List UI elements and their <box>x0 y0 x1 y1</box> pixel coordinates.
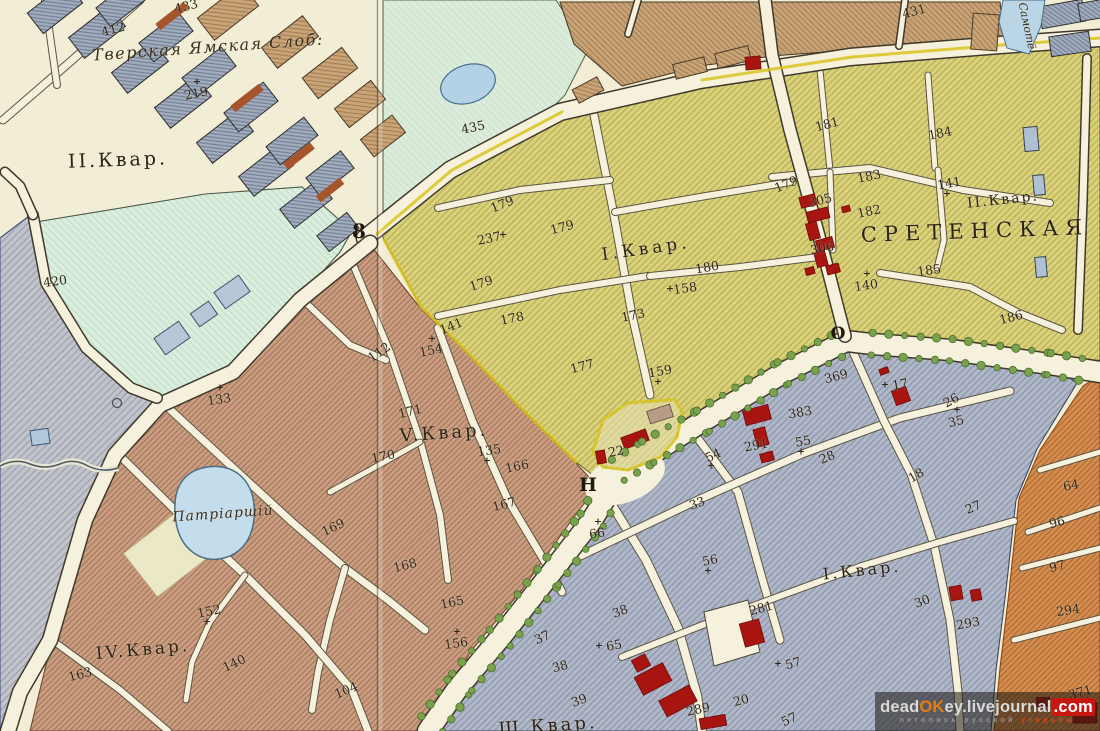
tree-icon <box>621 477 627 483</box>
watermark: deadOKey.livejournal.com летопись русско… <box>875 692 1100 731</box>
tree-icon <box>811 366 819 374</box>
tree-icon <box>449 670 456 677</box>
tree-icon <box>608 456 615 463</box>
tree-icon <box>883 353 890 360</box>
city-block-tan <box>971 13 999 51</box>
tree-icon <box>514 591 521 598</box>
tree-icon <box>814 338 821 345</box>
tree-icon <box>436 689 442 695</box>
tree-icon <box>486 626 493 633</box>
tree-icon <box>827 331 835 339</box>
tree-icon <box>758 369 764 375</box>
watermark-text-segment: .com <box>1052 698 1095 716</box>
tree-icon <box>899 353 907 361</box>
watermark-tagline-segment: усадьбы <box>1021 717 1075 724</box>
tree-icon <box>949 335 956 342</box>
watermark-text-segment: .livejournal <box>962 698 1052 716</box>
tree-icon <box>690 437 696 443</box>
tree-icon <box>693 407 700 414</box>
red-building <box>745 56 761 70</box>
tree-icon <box>946 358 952 364</box>
tree-icon <box>732 384 739 391</box>
tree-icon <box>1029 347 1035 353</box>
tree-icon <box>706 428 712 434</box>
tree-icon <box>977 361 985 369</box>
tree-icon <box>1024 368 1032 376</box>
tree-icon <box>534 565 541 572</box>
tree-icon <box>774 359 781 366</box>
red-building <box>595 450 606 464</box>
tree-icon <box>718 420 725 427</box>
tree-icon <box>600 523 606 529</box>
tree-icon <box>902 332 908 338</box>
tree-icon <box>555 582 561 588</box>
tree-icon <box>1059 374 1066 381</box>
building-bluegrey <box>1033 175 1046 196</box>
tree-icon <box>562 530 569 537</box>
tree-icon <box>591 534 598 541</box>
building-bluegrey <box>1035 257 1048 278</box>
tree-icon <box>607 509 614 516</box>
tree-icon <box>885 330 893 338</box>
watermark-tagline-segment: летопись русской <box>899 717 1021 724</box>
red-building <box>970 589 982 602</box>
tree-icon <box>916 355 922 361</box>
tree-icon <box>570 517 578 525</box>
watermark-tagline: летопись русской усадьбы <box>899 717 1075 724</box>
historical-map: Тверская Ямская Слоб:II.Квар.I.Квар.II.К… <box>0 0 1100 731</box>
tree-icon <box>444 676 451 683</box>
tree-icon <box>505 603 511 609</box>
tree-icon <box>426 700 434 708</box>
tree-icon <box>544 595 551 602</box>
city-block-tan <box>197 0 258 40</box>
city-block-grey <box>1078 0 1100 21</box>
city-block-grey <box>27 0 82 34</box>
tree-icon <box>456 703 464 711</box>
tree-icon <box>495 614 503 622</box>
tree-icon <box>1044 372 1050 378</box>
tree-icon <box>543 553 551 561</box>
watermark-brand: deadOKey.livejournal.com <box>880 699 1095 716</box>
tree-icon <box>757 397 764 404</box>
fold-highlight <box>379 0 383 731</box>
tree-icon <box>584 496 592 504</box>
tree-icon <box>478 636 485 643</box>
tree-icon <box>418 713 425 720</box>
tree-icon <box>487 664 495 672</box>
tree-icon <box>665 424 671 430</box>
tree-icon <box>769 389 777 397</box>
tree-icon <box>868 352 874 358</box>
tree-icon <box>1047 350 1054 357</box>
city-block-tan <box>262 16 319 69</box>
tree-icon <box>798 373 805 380</box>
tree-icon <box>498 653 504 659</box>
tree-icon <box>525 618 533 626</box>
tree-icon <box>663 451 670 458</box>
building-bluegrey <box>30 428 50 445</box>
tree-icon <box>651 459 657 465</box>
tree-icon <box>964 337 972 345</box>
tree-icon <box>583 546 589 552</box>
tree-icon <box>787 351 795 359</box>
tree-icon <box>676 444 684 452</box>
tree-icon <box>996 342 1003 349</box>
tree-icon <box>564 569 571 576</box>
tree-icon <box>448 716 455 723</box>
city-block-tan <box>302 47 357 98</box>
tree-icon <box>801 346 807 352</box>
patriarch-pond <box>175 466 254 559</box>
tree-icon <box>785 381 791 387</box>
tree-icon <box>869 329 876 336</box>
tree-icon <box>621 448 629 456</box>
tree-icon <box>994 365 1000 371</box>
tree-icon <box>931 356 938 363</box>
tree-icon <box>523 579 531 587</box>
tree-icon <box>638 438 645 445</box>
tree-icon <box>962 360 969 367</box>
tree-icon <box>507 643 513 649</box>
watermark-text-segment: ey <box>945 698 963 716</box>
tree-icon <box>458 658 466 666</box>
tree-icon <box>516 631 523 638</box>
tree-icon <box>745 405 751 411</box>
tree-icon <box>478 675 485 682</box>
tree-icon <box>1009 366 1016 373</box>
tree-icon <box>825 360 831 366</box>
building-bluegrey <box>1023 126 1039 151</box>
tree-icon <box>706 399 714 407</box>
tree-icon <box>1012 344 1020 352</box>
watermark-text-segment: dead <box>880 698 919 716</box>
tree-icon <box>731 412 739 420</box>
tree-icon <box>981 340 987 346</box>
tree-icon <box>469 648 475 654</box>
tree-icon <box>838 353 845 360</box>
tree-icon <box>577 510 584 517</box>
tree-icon <box>535 608 541 614</box>
map-canvas <box>0 0 1100 731</box>
tree-icon <box>917 333 924 340</box>
tree-icon <box>553 542 559 548</box>
tree-icon <box>932 334 940 342</box>
tree-icon <box>469 687 475 693</box>
tree-icon <box>678 416 685 423</box>
tree-icon <box>1062 352 1070 360</box>
tree-icon <box>719 392 725 398</box>
watermark-text-segment: OK <box>919 698 944 716</box>
red-building <box>949 585 963 601</box>
tree-icon <box>633 469 640 476</box>
tree-icon <box>651 430 659 438</box>
tree-icon <box>1079 355 1085 361</box>
tree-icon <box>1075 376 1083 384</box>
tree-icon <box>744 376 752 384</box>
tree-icon <box>572 557 580 565</box>
